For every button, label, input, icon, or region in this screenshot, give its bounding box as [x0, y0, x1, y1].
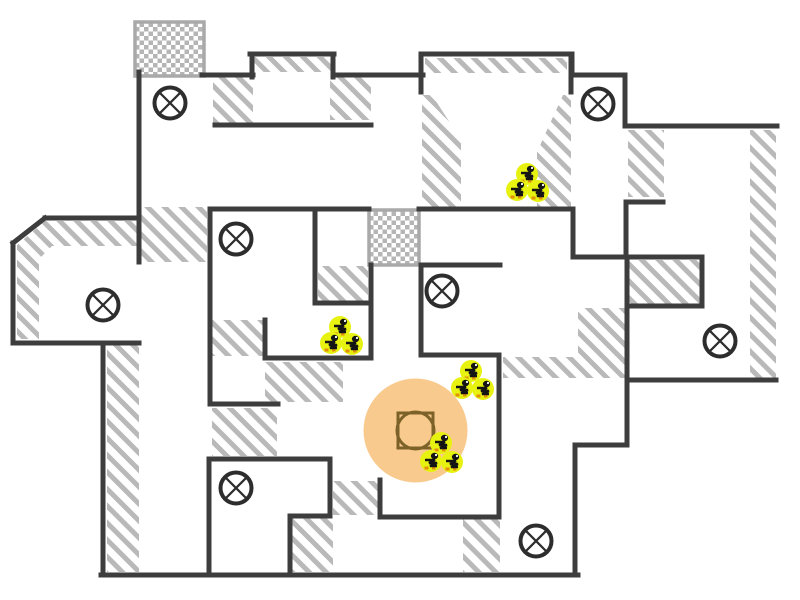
circled-x-marker[interactable]	[155, 88, 186, 119]
circled-x-marker[interactable]	[221, 473, 252, 504]
hatched-wall-area	[107, 345, 139, 572]
circled-x-marker[interactable]	[88, 290, 119, 321]
unit-marker[interactable]	[527, 180, 549, 202]
circled-x-marker[interactable]	[583, 89, 614, 120]
hatched-wall-area	[750, 130, 776, 378]
circled-x-marker[interactable]	[221, 224, 252, 255]
hatched-wall-area	[265, 362, 343, 402]
checkered-zone[interactable]	[369, 210, 419, 265]
hatched-wall-area	[253, 57, 331, 72]
hatched-wall-area	[212, 408, 277, 456]
hatched-wall-area	[318, 266, 368, 302]
hatched-wall-area	[213, 77, 253, 123]
circled-x-marker[interactable]	[705, 326, 736, 357]
unit-marker[interactable]	[472, 378, 494, 400]
hatched-wall-area	[425, 58, 567, 73]
unit-marker[interactable]	[506, 179, 528, 201]
unit-marker[interactable]	[451, 377, 473, 399]
floor-plan-svg	[0, 0, 800, 600]
hatched-wall-area	[333, 481, 378, 515]
hatched-wall-area	[330, 77, 371, 120]
circled-x-marker[interactable]	[521, 526, 552, 557]
unit-marker[interactable]	[441, 451, 463, 473]
unit-marker[interactable]	[420, 450, 442, 472]
hatched-wall-area	[463, 518, 500, 572]
floor-plan-viewport	[0, 0, 800, 600]
unit-marker[interactable]	[320, 332, 342, 354]
hatched-wall-area	[141, 207, 207, 262]
unit-marker[interactable]	[341, 333, 363, 355]
hatched-wall-area	[628, 130, 664, 197]
circled-x-marker[interactable]	[427, 276, 458, 307]
checkered-zone[interactable]	[135, 22, 204, 76]
hatched-wall-area	[212, 320, 263, 356]
hatched-wall-area	[629, 260, 702, 304]
hatched-wall-area	[292, 518, 333, 572]
